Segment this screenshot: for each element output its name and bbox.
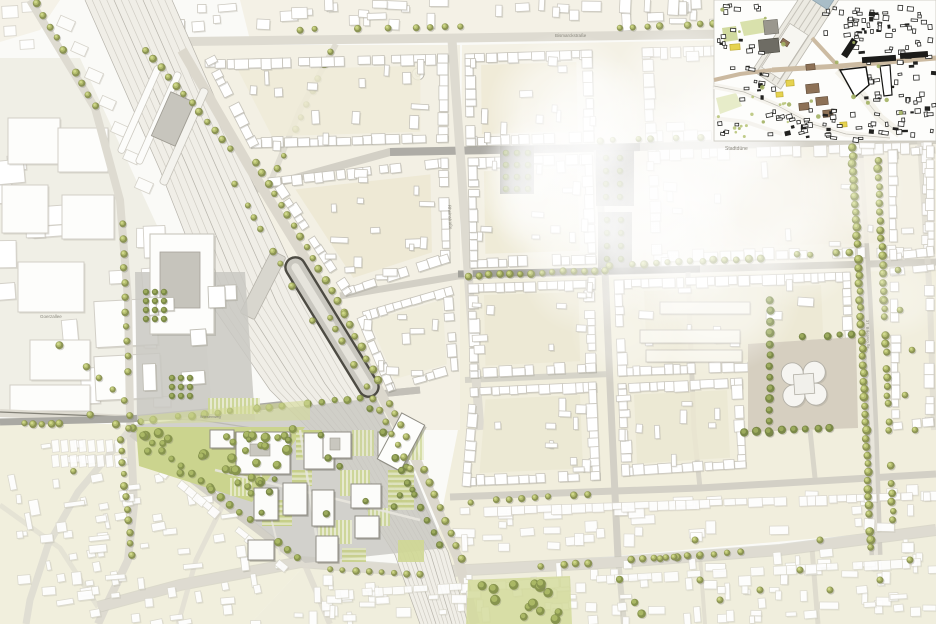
svg-text:37. Baleareo Str.: 37. Baleareo Str. xyxy=(865,320,871,350)
svg-text:Stadtdüne: Stadtdüne xyxy=(725,146,748,152)
svg-text:Goerzallee: Goerzallee xyxy=(40,314,62,319)
svg-text:Bismarckstraße: Bismarckstraße xyxy=(555,33,587,38)
svg-text:Wiesenweg: Wiesenweg xyxy=(200,414,221,419)
